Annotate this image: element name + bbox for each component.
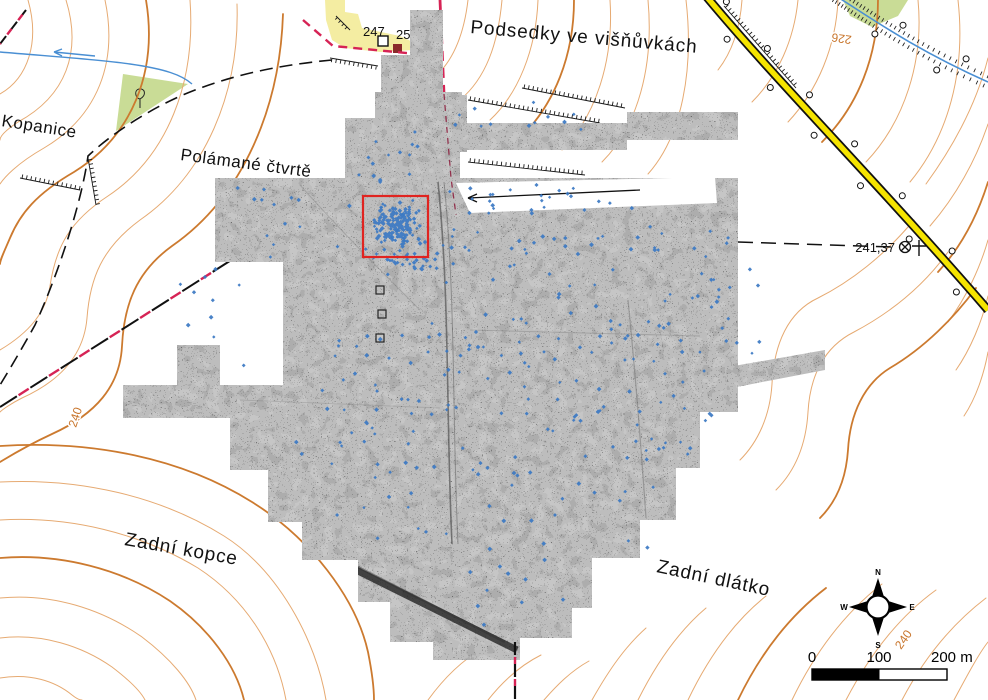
tree-circle-icon (934, 67, 940, 73)
tree-circle-icon (767, 85, 773, 91)
tree-circle-icon (852, 141, 858, 147)
tree-circle-icon (949, 248, 955, 254)
tree-circle-icon (953, 289, 959, 295)
tree-circle-icon (724, 36, 730, 42)
tree-circle-icon (906, 236, 912, 242)
tree-circle-icon (764, 46, 770, 52)
label-elevation-247: 247 (363, 24, 385, 39)
compass-w: W (840, 603, 848, 612)
tree-circle-icon (858, 183, 864, 189)
label-trig-elevation: 241,37 (855, 240, 895, 255)
tree-circle-icon (899, 193, 905, 199)
contour-label-226: 226 (830, 30, 852, 47)
tree-circle-icon (811, 132, 817, 138)
topographic-survey-map: Podsedky ve višňůvkách Polámané čtvrtě K… (0, 0, 988, 700)
scale-label-0: 0 (808, 649, 816, 666)
compass-circle (867, 596, 890, 619)
scale-label-100: 100 (866, 649, 891, 666)
map-canvas: Podsedky ve višňůvkách Polámané čtvrtě K… (0, 0, 988, 700)
scale-label-200: 200 m (931, 649, 973, 666)
tree-circle-icon (807, 92, 813, 98)
compass-e: E (909, 603, 915, 612)
tree-circle-icon (900, 22, 906, 28)
tree-circle-icon (963, 56, 969, 62)
tree-circle-icon (872, 31, 878, 37)
compass-n: N (875, 568, 881, 577)
tree-circle-icon (723, 0, 729, 5)
